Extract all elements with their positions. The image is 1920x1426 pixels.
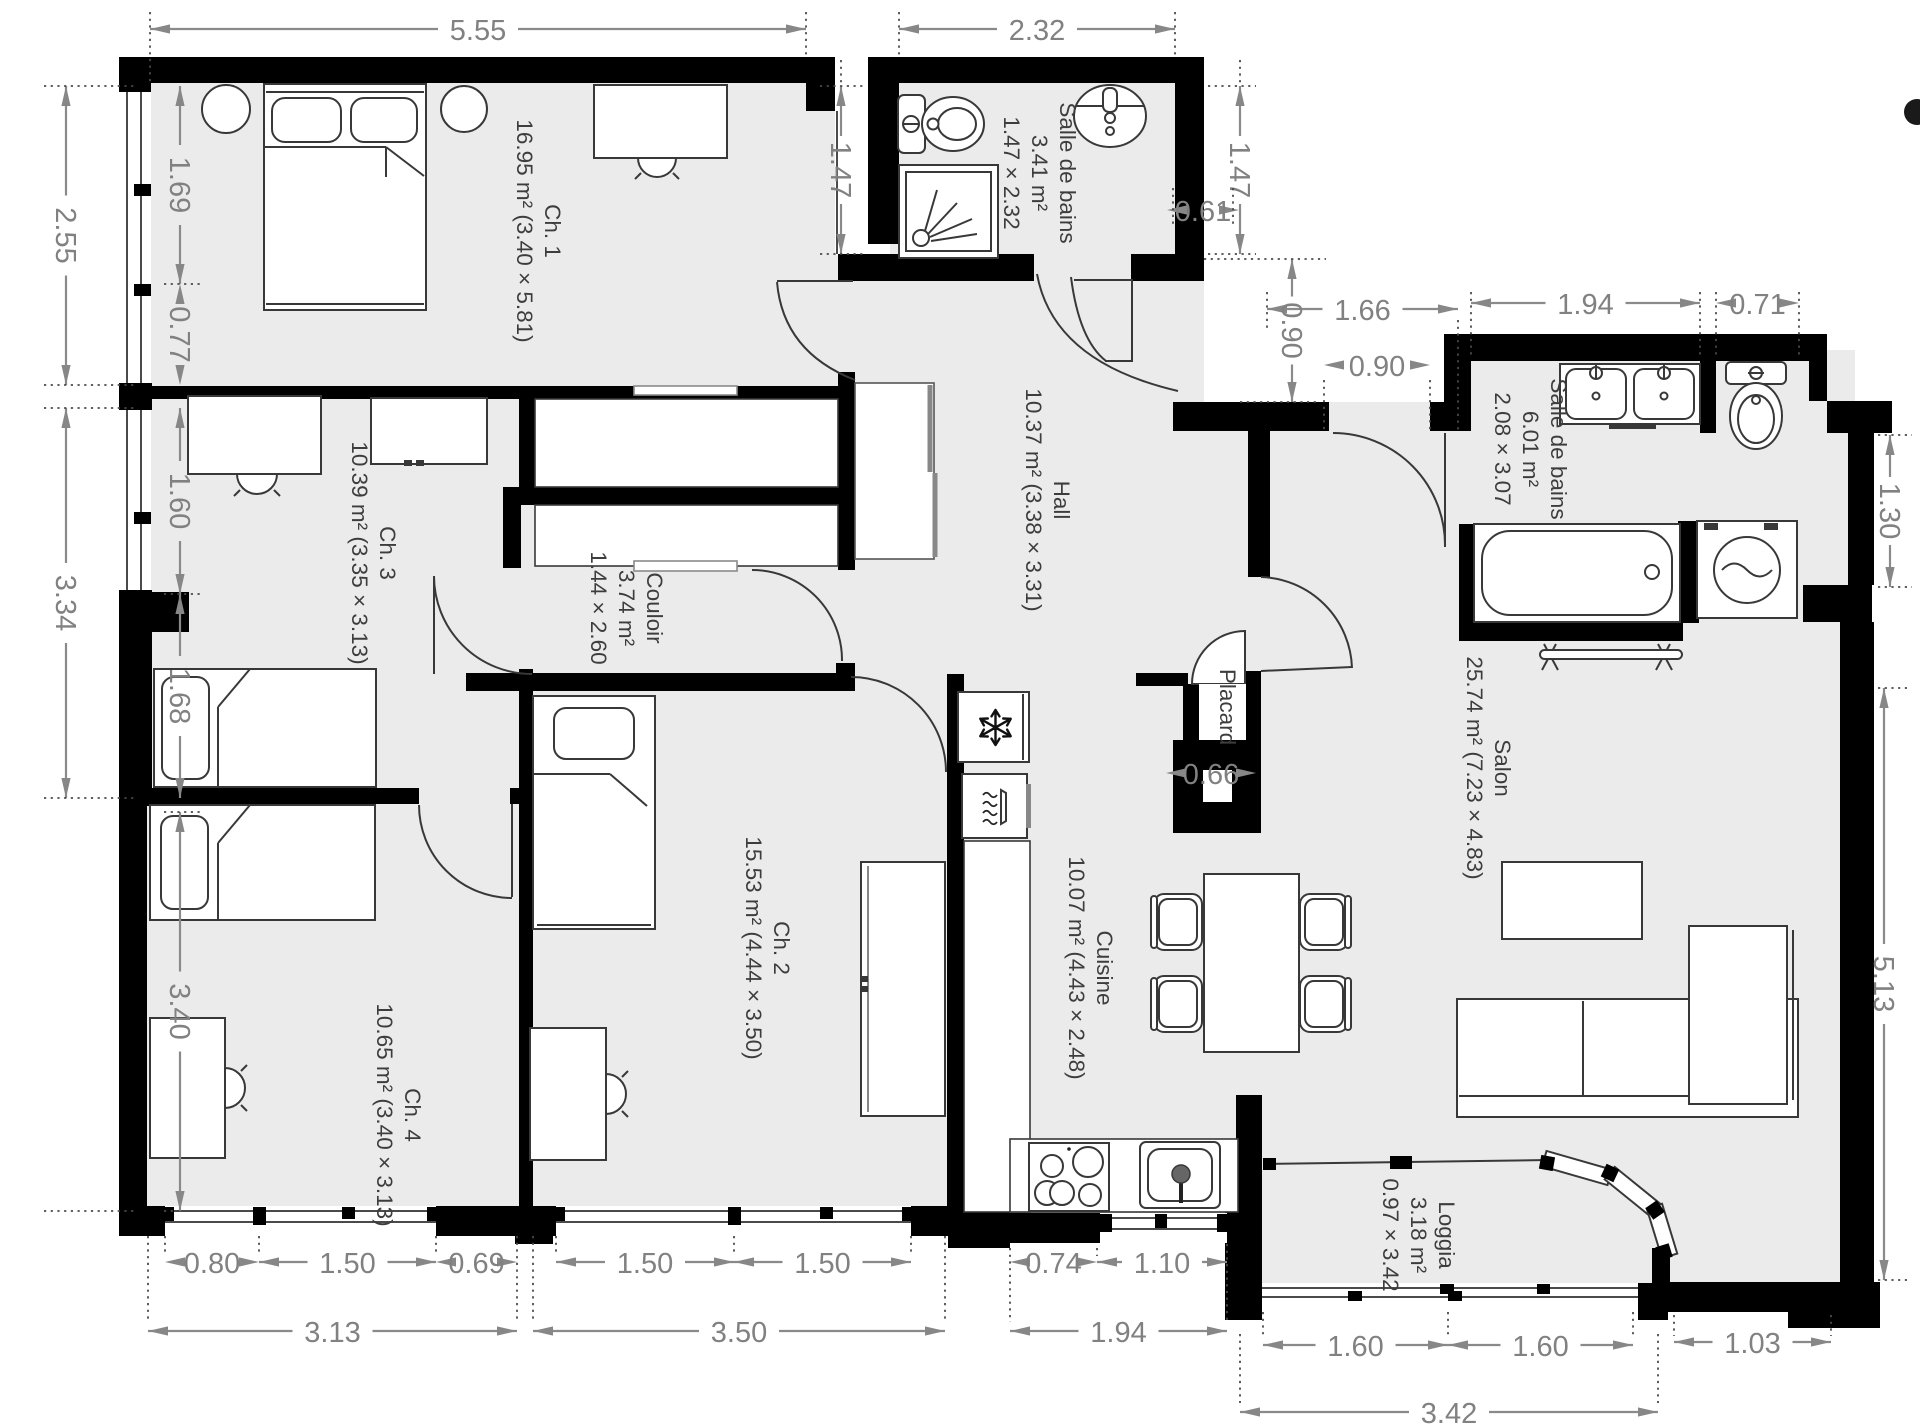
svg-text:3.18 m²: 3.18 m² bbox=[1406, 1197, 1431, 1274]
svg-text:1.50: 1.50 bbox=[617, 1248, 673, 1280]
svg-text:1.50: 1.50 bbox=[319, 1248, 375, 1280]
svg-text:3.13: 3.13 bbox=[304, 1317, 360, 1349]
svg-text:1.10: 1.10 bbox=[1134, 1248, 1190, 1280]
svg-text:1.47: 1.47 bbox=[1223, 142, 1255, 198]
svg-text:16.95 m² (3.40 × 5.81): 16.95 m² (3.40 × 5.81) bbox=[512, 119, 537, 342]
svg-text:2.55: 2.55 bbox=[49, 207, 81, 263]
svg-text:0.80: 0.80 bbox=[184, 1248, 240, 1280]
svg-text:Couloir: Couloir bbox=[642, 572, 667, 644]
svg-text:10.65 m² (3.40 × 3.13): 10.65 m² (3.40 × 3.13) bbox=[372, 1003, 397, 1226]
svg-text:3.42: 3.42 bbox=[1421, 1398, 1477, 1426]
svg-text:1.60: 1.60 bbox=[163, 473, 195, 529]
svg-text:10.37 m² (3.38 × 3.31): 10.37 m² (3.38 × 3.31) bbox=[1021, 388, 1046, 611]
svg-text:1.47 × 2.32: 1.47 × 2.32 bbox=[999, 116, 1024, 229]
svg-text:1.47: 1.47 bbox=[824, 142, 856, 198]
svg-text:2.32: 2.32 bbox=[1009, 15, 1065, 47]
svg-text:0.71: 0.71 bbox=[1729, 289, 1785, 321]
svg-text:0.61: 0.61 bbox=[1175, 196, 1231, 228]
svg-text:3.34: 3.34 bbox=[49, 575, 81, 631]
svg-text:Placard: Placard bbox=[1215, 669, 1240, 745]
svg-text:6.01 m²: 6.01 m² bbox=[1518, 411, 1543, 488]
svg-text:1.03: 1.03 bbox=[1724, 1328, 1780, 1360]
svg-text:Ch. 1: Ch. 1 bbox=[540, 204, 565, 258]
svg-text:1.94: 1.94 bbox=[1557, 289, 1613, 321]
svg-text:Ch. 2: Ch. 2 bbox=[769, 921, 794, 975]
svg-text:15.53 m² (4.44 × 3.50): 15.53 m² (4.44 × 3.50) bbox=[741, 836, 766, 1059]
svg-text:Loggia: Loggia bbox=[1434, 1201, 1459, 1269]
svg-text:3.41 m²: 3.41 m² bbox=[1027, 135, 1052, 212]
svg-text:0.66: 0.66 bbox=[1183, 759, 1239, 791]
svg-text:Cuisine: Cuisine bbox=[1092, 930, 1117, 1005]
svg-text:1.60: 1.60 bbox=[1512, 1331, 1568, 1363]
svg-text:5.13: 5.13 bbox=[1867, 956, 1899, 1012]
svg-text:1.30: 1.30 bbox=[1873, 483, 1905, 539]
svg-text:2.08 × 3.07: 2.08 × 3.07 bbox=[1490, 392, 1515, 505]
svg-text:3.50: 3.50 bbox=[711, 1317, 767, 1349]
svg-text:0.97 × 3.42: 0.97 × 3.42 bbox=[1378, 1178, 1403, 1291]
svg-text:0.77: 0.77 bbox=[163, 306, 195, 362]
svg-text:25.74 m² (7.23 × 4.83): 25.74 m² (7.23 × 4.83) bbox=[1462, 656, 1487, 879]
svg-text:1.60: 1.60 bbox=[1327, 1331, 1383, 1363]
svg-text:Salle de bains: Salle de bains bbox=[1055, 102, 1080, 243]
svg-text:1.44 × 2.60: 1.44 × 2.60 bbox=[586, 551, 611, 664]
svg-text:Salon: Salon bbox=[1490, 739, 1515, 797]
svg-text:Ch. 4: Ch. 4 bbox=[400, 1088, 425, 1142]
svg-text:3.40: 3.40 bbox=[163, 983, 195, 1039]
svg-text:Ch. 3: Ch. 3 bbox=[375, 526, 400, 580]
svg-text:Salle de bains: Salle de bains bbox=[1546, 378, 1571, 519]
svg-text:Hall: Hall bbox=[1049, 481, 1074, 520]
svg-text:10.39 m² (3.35 × 3.13): 10.39 m² (3.35 × 3.13) bbox=[347, 441, 372, 664]
svg-text:5.55: 5.55 bbox=[450, 15, 506, 47]
svg-text:1.68: 1.68 bbox=[163, 668, 195, 724]
svg-text:1.69: 1.69 bbox=[163, 157, 195, 213]
svg-text:0.90: 0.90 bbox=[1275, 302, 1307, 358]
svg-text:1.66: 1.66 bbox=[1334, 295, 1390, 327]
svg-text:3.74 m²: 3.74 m² bbox=[614, 570, 639, 647]
svg-text:1.50: 1.50 bbox=[794, 1248, 850, 1280]
svg-text:0.69: 0.69 bbox=[448, 1248, 504, 1280]
svg-text:0.90: 0.90 bbox=[1349, 351, 1405, 383]
svg-text:1.94: 1.94 bbox=[1090, 1317, 1146, 1349]
svg-text:0.74: 0.74 bbox=[1025, 1248, 1081, 1280]
svg-text:10.07 m² (4.43 × 2.48): 10.07 m² (4.43 × 2.48) bbox=[1064, 856, 1089, 1079]
